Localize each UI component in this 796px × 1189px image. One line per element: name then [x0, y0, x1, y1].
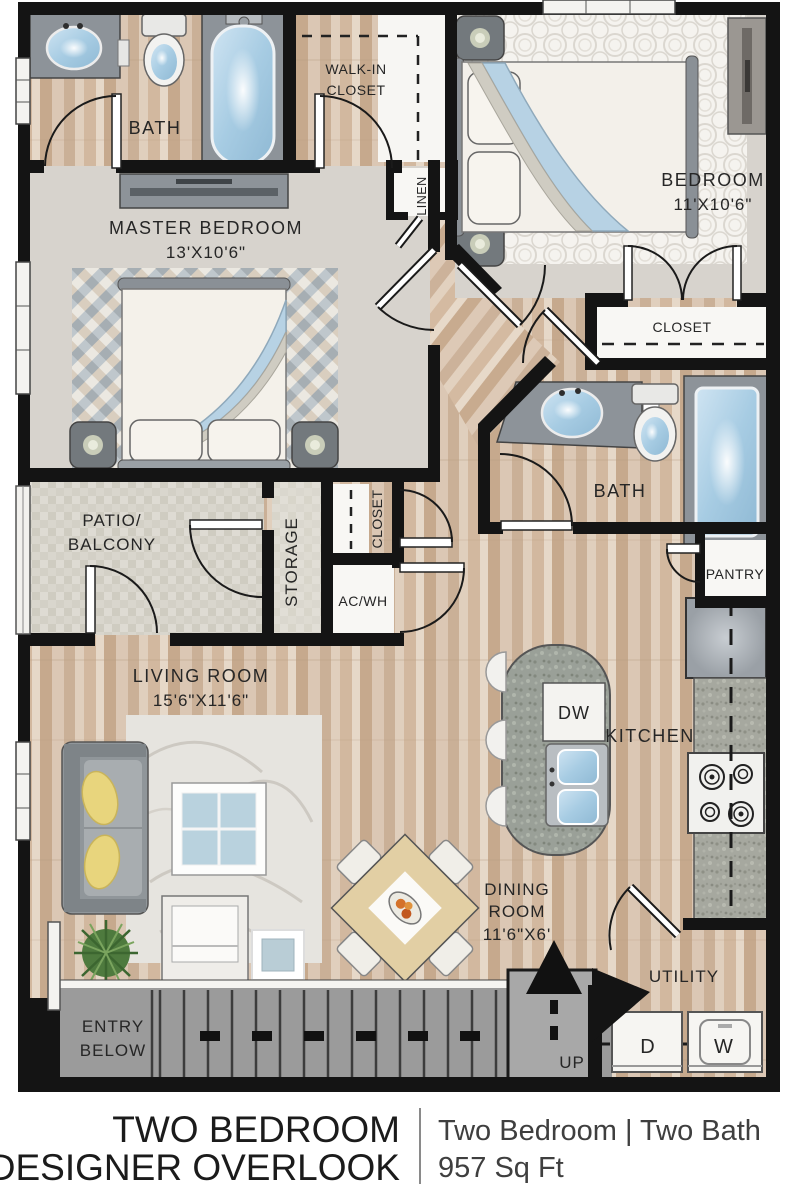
island-sink [546, 744, 608, 826]
room-label-patio-line2: BALCONY [68, 535, 156, 554]
window [16, 262, 30, 394]
room-label-dining-line2: ROOM [489, 902, 546, 921]
room-dims-bedroom2: 11'X10'6" [674, 195, 753, 214]
room-label-utility: UTILITY [649, 967, 719, 986]
pillow [468, 152, 520, 224]
label-entry-line2: BELOW [80, 1041, 146, 1060]
room-label-linen: LINEN [415, 176, 429, 215]
plant [74, 920, 138, 986]
plan-title-line1: TWO BEDROOM [112, 1109, 400, 1150]
room-dims-living: 15'6"X11'6" [153, 691, 249, 710]
sofa [62, 742, 148, 914]
label-dishwasher: DW [558, 703, 590, 723]
plan-title-line2: DESIGNER OVERLOOK [0, 1147, 400, 1188]
kitchen-island [486, 645, 610, 855]
tv-console [162, 896, 248, 984]
room-label-bedroom2: BEDROOM [661, 170, 765, 190]
bed [452, 56, 698, 238]
room-label-pantry: PANTRY [706, 566, 765, 582]
room-label-master-bath: BATH [129, 118, 182, 138]
entry-window [48, 922, 60, 1010]
bedroom2 [452, 14, 766, 266]
room-dims-master-bedroom: 13'X10'6" [166, 243, 246, 262]
window [16, 742, 30, 840]
room-label-dining-line1: DINING [484, 880, 550, 899]
coffee-table [172, 783, 266, 875]
pillow [130, 420, 202, 462]
toilet [142, 14, 186, 86]
room-label-hall-closet: CLOSET [369, 489, 385, 548]
footer: TWO BEDROOM DESIGNER OVERLOOK Two Bedroo… [0, 1108, 761, 1188]
window [16, 58, 30, 124]
room-label-bedroom2-closet: CLOSET [652, 319, 711, 335]
plan-subtitle-line2: 957 Sq Ft [438, 1152, 564, 1184]
bathtub [202, 12, 284, 170]
room-dims-dining: 11'6"X6' [483, 925, 551, 944]
dresser [120, 174, 288, 208]
dresser [728, 18, 766, 134]
room-label-ac-wh: AC/WH [338, 593, 387, 609]
toilet [632, 384, 678, 461]
window [16, 486, 30, 634]
side-table [252, 930, 304, 980]
stove [688, 753, 764, 833]
label-dryer: D [640, 1036, 655, 1058]
room-label-walk-in-line2: CLOSET [326, 82, 385, 98]
label-up: UP [559, 1053, 585, 1072]
pillow [208, 420, 280, 462]
room-label-kitchen: KITCHEN [605, 726, 695, 746]
label-entry-line1: ENTRY [82, 1017, 144, 1036]
window [543, 0, 675, 14]
refrigerator [686, 598, 766, 678]
plan-subtitle-line1: Two Bedroom | Two Bath [438, 1115, 761, 1147]
bed [118, 278, 290, 474]
room-label-storage: STORAGE [282, 517, 301, 607]
utility-room [594, 1012, 766, 1072]
room-label-bath2: BATH [594, 481, 647, 501]
floor-plan-page: BATH WALK-IN CLOSET LINEN BEDROOM 11'X10… [0, 0, 796, 1189]
floor-plan-canvas: BATH WALK-IN CLOSET LINEN BEDROOM 11'X10… [0, 0, 796, 1189]
living-room [62, 715, 322, 986]
room-label-patio-line1: PATIO/ [82, 511, 141, 530]
room-label-walk-in-line1: WALK-IN [325, 61, 386, 77]
label-washer: W [714, 1036, 734, 1058]
room-label-master-bedroom: MASTER BEDROOM [109, 218, 303, 238]
room-label-living: LIVING ROOM [133, 666, 270, 686]
